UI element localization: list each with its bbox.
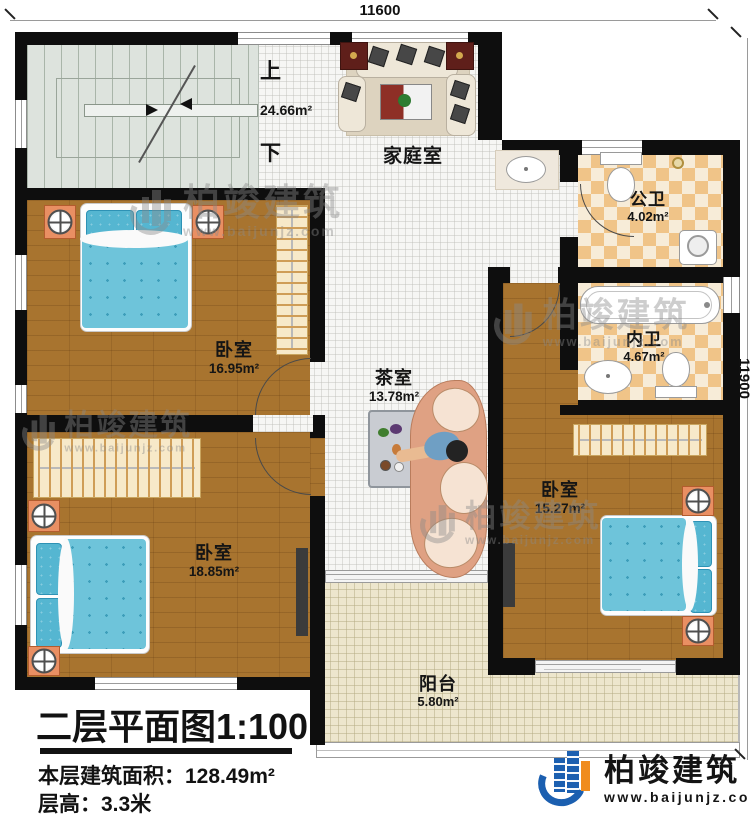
window-bottom-bedroom bbox=[95, 677, 237, 690]
plan-title: 二层平面图1:100 bbox=[36, 698, 308, 750]
window-right-innerbath bbox=[723, 277, 740, 313]
nightstand-icon bbox=[682, 486, 714, 516]
wardrobe-icon bbox=[276, 205, 308, 355]
balcony-floor-left bbox=[322, 583, 492, 742]
bath-sink-drain bbox=[606, 374, 610, 378]
wall-bedrooms-divider-a bbox=[15, 415, 253, 432]
stair-up-label: 上 bbox=[256, 60, 286, 84]
bathtub-inner bbox=[586, 291, 712, 319]
wall-stairs-bottom bbox=[15, 188, 325, 200]
window-left-stairs bbox=[15, 100, 27, 148]
lamp-icon bbox=[686, 489, 711, 514]
blanket-icon bbox=[602, 518, 686, 611]
room-label-balcony: 阳台5.80m² bbox=[398, 674, 478, 710]
room-label-bedroom-top: 卧室16.95m² bbox=[192, 340, 276, 376]
wall-bedroom-right-bottom-a bbox=[488, 658, 535, 675]
floor-area-label: 本层建筑面积： bbox=[38, 765, 185, 788]
blanket-icon bbox=[82, 238, 188, 328]
nightstand-icon bbox=[44, 205, 76, 239]
wall-family-right bbox=[478, 32, 502, 140]
lamp-icon bbox=[48, 210, 73, 235]
wall-bath-left-c bbox=[560, 405, 578, 415]
balcony-floor-right bbox=[492, 673, 740, 742]
person-head bbox=[446, 440, 468, 462]
wardrobe-icon bbox=[573, 424, 707, 456]
floor-height-label: 层高： bbox=[38, 793, 101, 816]
window-left-bedroom-bottom bbox=[15, 565, 27, 625]
lamp-icon bbox=[686, 619, 711, 644]
floor-height-line: 层高：3.3米 bbox=[38, 788, 151, 818]
title-underline bbox=[40, 748, 292, 754]
room-label-family: 家庭室 bbox=[368, 146, 458, 168]
sofa-cushion-icon bbox=[440, 462, 488, 514]
exterior-notch bbox=[502, 0, 750, 140]
logo-building-bar bbox=[554, 758, 565, 792]
washer-door-icon bbox=[687, 235, 709, 257]
room-label-public-bath: 公卫4.02m² bbox=[610, 190, 686, 224]
end-table-lamp-icon bbox=[350, 52, 357, 59]
brand-logo-icon bbox=[538, 748, 596, 810]
nightstand-icon bbox=[28, 646, 60, 676]
wall-bedrooms-divider-b bbox=[313, 415, 325, 432]
nightstand-icon bbox=[192, 205, 224, 239]
stair-arrow-left-icon bbox=[180, 98, 192, 110]
room-label-inner-bath: 内卫4.67m² bbox=[606, 330, 682, 364]
floor-drain-icon bbox=[672, 157, 684, 169]
room-label-bedroom-right: 卧室15.27m² bbox=[518, 480, 602, 516]
fruit-icon bbox=[378, 428, 389, 437]
family-area-label: 24.66m² bbox=[260, 102, 336, 118]
stair-down-label: 下 bbox=[256, 142, 286, 166]
wall-bath-divider-b bbox=[558, 267, 723, 283]
wall-right bbox=[723, 155, 740, 675]
dimension-line-top bbox=[10, 20, 716, 21]
logo-building-bar bbox=[567, 751, 579, 793]
hall-sink-drain bbox=[524, 167, 528, 171]
room-label-bedroom-bottom: 卧室18.85m² bbox=[172, 543, 256, 579]
plate-icon bbox=[394, 462, 404, 472]
wall-bath-divider-a bbox=[488, 267, 510, 283]
door-gap-bedroom-bottom bbox=[310, 438, 325, 496]
lamp-icon bbox=[32, 504, 57, 529]
lamp-icon bbox=[32, 649, 57, 674]
wall-bedroom-top-right bbox=[310, 193, 325, 362]
tv-icon bbox=[296, 548, 308, 636]
nightstand-icon bbox=[28, 500, 60, 532]
tv-icon bbox=[503, 543, 515, 607]
stair-arrow-right-icon bbox=[146, 104, 158, 116]
wardrobe-icon bbox=[33, 438, 201, 498]
plate-icon bbox=[380, 460, 391, 471]
lamp-icon bbox=[196, 210, 221, 235]
toilet-tank-icon bbox=[655, 386, 697, 398]
dimension-tick bbox=[4, 8, 15, 19]
wall-innerbath-bottom bbox=[578, 400, 723, 415]
blanket-fold bbox=[58, 538, 74, 650]
wall-bedroom-right-left bbox=[488, 283, 503, 658]
window-left-bedroom-top2 bbox=[15, 385, 27, 413]
nightstand-icon bbox=[682, 616, 714, 646]
end-table-lamp-icon bbox=[456, 52, 463, 59]
floor-area-value: 128.49m² bbox=[185, 765, 275, 788]
fruit-icon bbox=[390, 424, 402, 434]
window-top-stairs bbox=[238, 32, 330, 45]
floor-height-value: 3.3米 bbox=[101, 793, 151, 816]
blanket-icon bbox=[64, 539, 146, 649]
wall-bath-left-b bbox=[560, 237, 578, 370]
bathtub-faucet-icon bbox=[704, 302, 710, 308]
plant-icon bbox=[398, 94, 411, 107]
blanket-fold bbox=[682, 518, 698, 611]
logo-url: www.baijunjz.com bbox=[604, 790, 750, 804]
logo-building-bar bbox=[581, 761, 590, 791]
wall-bedroom-right-bottom-b bbox=[676, 658, 723, 675]
dimension-height-label: 11900 bbox=[736, 349, 750, 409]
window-left-bedroom-top bbox=[15, 255, 27, 310]
room-label-tea: 茶室13.78m² bbox=[352, 368, 436, 404]
blanket-fold bbox=[80, 230, 188, 248]
wall-bath-left-a bbox=[560, 155, 578, 182]
logo-name: 柏竣建筑 bbox=[604, 755, 750, 786]
brand-logo: 柏竣建筑 www.baijunjz.com bbox=[538, 748, 750, 810]
floor-area-line: 本层建筑面积：128.49m² bbox=[38, 760, 275, 790]
toilet-tank-icon bbox=[600, 152, 642, 165]
dimension-width-label: 11600 bbox=[330, 2, 430, 19]
slider-bedroom-balcony bbox=[535, 660, 676, 673]
